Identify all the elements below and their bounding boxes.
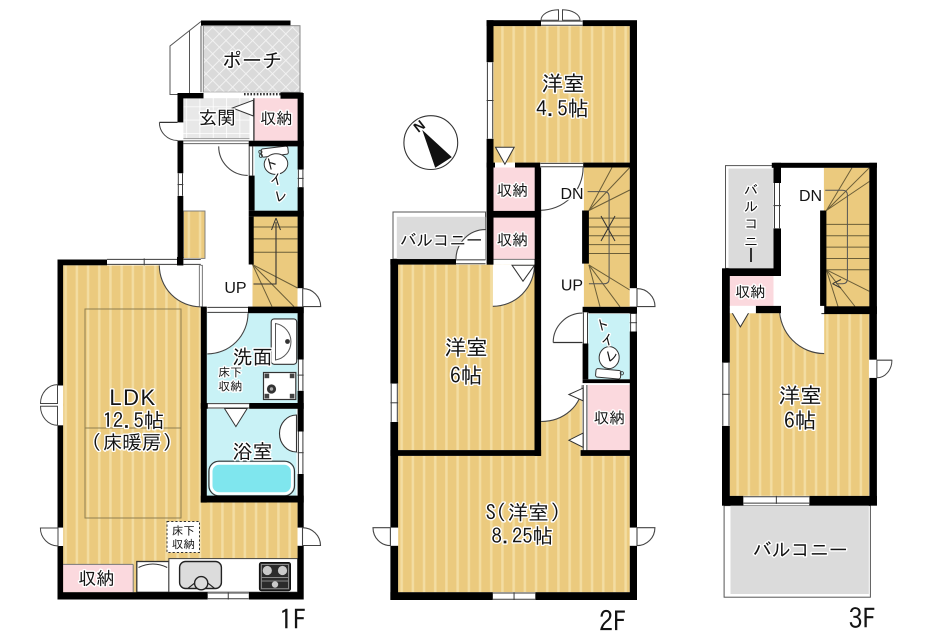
svg-text:LDK: LDK [109, 385, 156, 410]
svg-text:DN: DN [560, 186, 583, 203]
svg-text:UP: UP [224, 280, 246, 297]
svg-text:DN: DN [799, 188, 822, 205]
svg-text:UP: UP [561, 278, 583, 295]
